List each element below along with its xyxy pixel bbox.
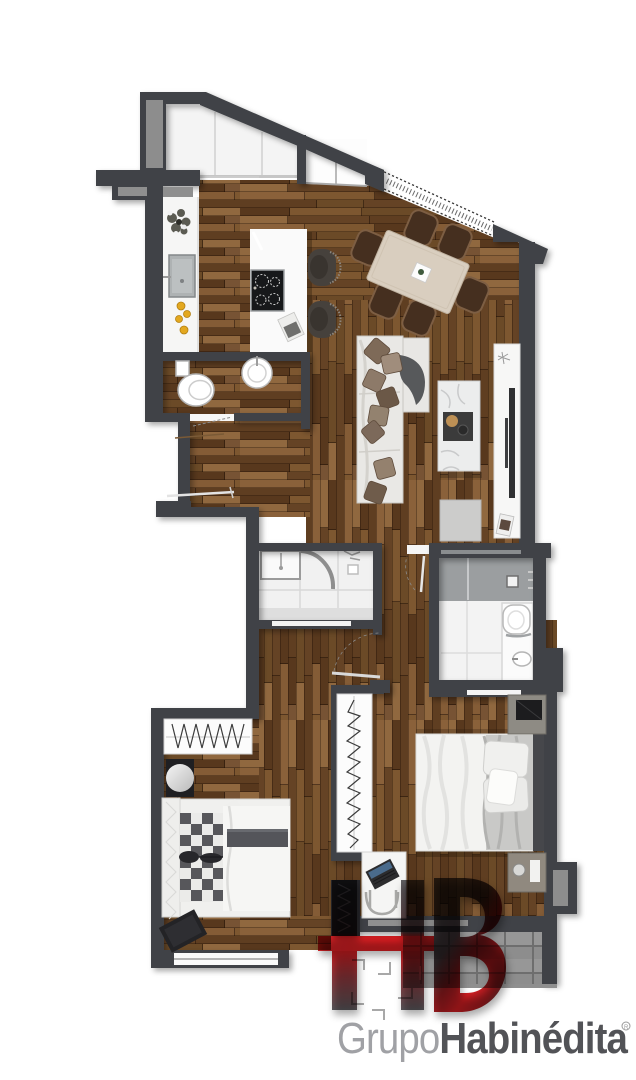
svg-text:R: R	[624, 1025, 629, 1031]
svg-text:GrupoHabinédita: GrupoHabinédita	[337, 1014, 629, 1063]
